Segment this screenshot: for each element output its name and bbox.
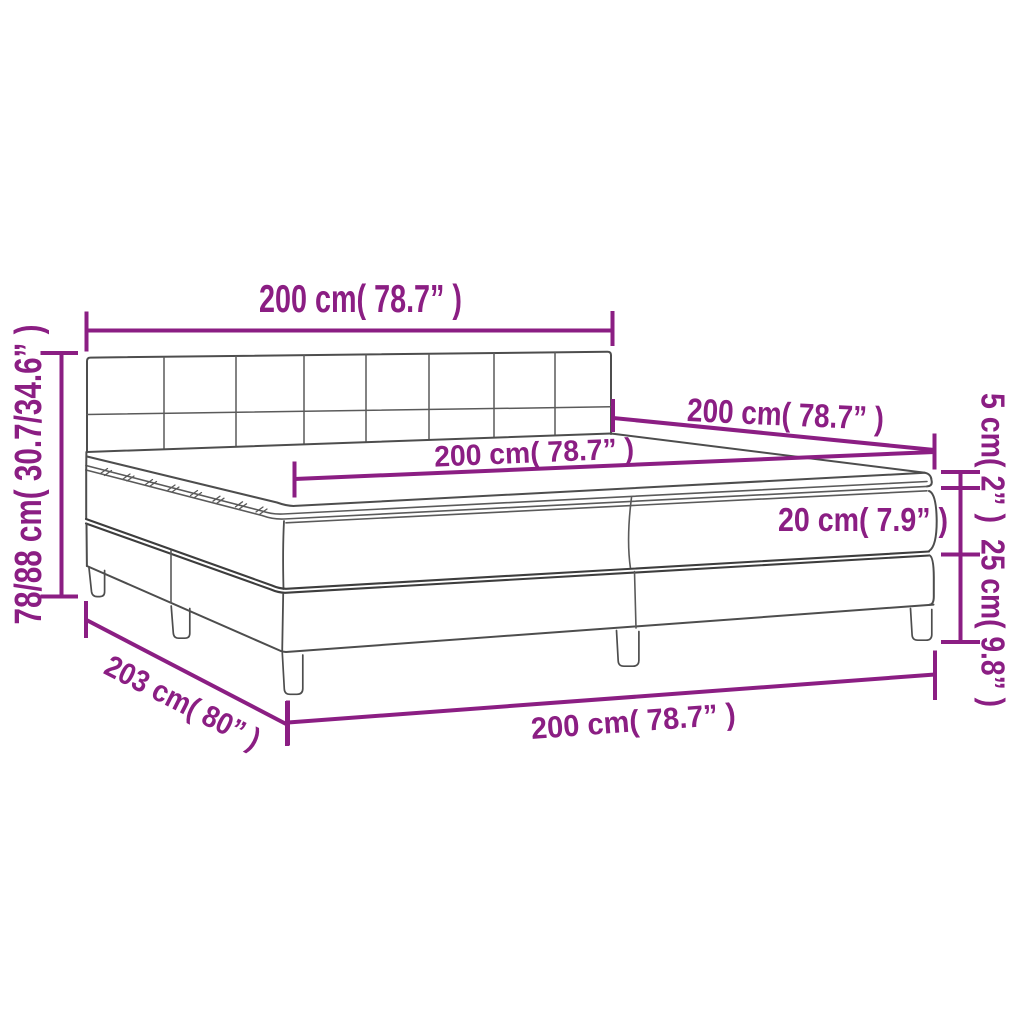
svg-text:20 cm( 7.9” ): 20 cm( 7.9” ) [778,501,948,538]
svg-text:5 cm( 2” ): 5 cm( 2” ) [974,393,1011,523]
svg-text:78/88 cm( 30.7/34.6” ): 78/88 cm( 30.7/34.6” ) [8,325,50,625]
svg-text:25 cm( 9.8” ): 25 cm( 9.8” ) [974,539,1011,707]
svg-text:200 cm( 78.7” ): 200 cm( 78.7” ) [259,278,462,321]
